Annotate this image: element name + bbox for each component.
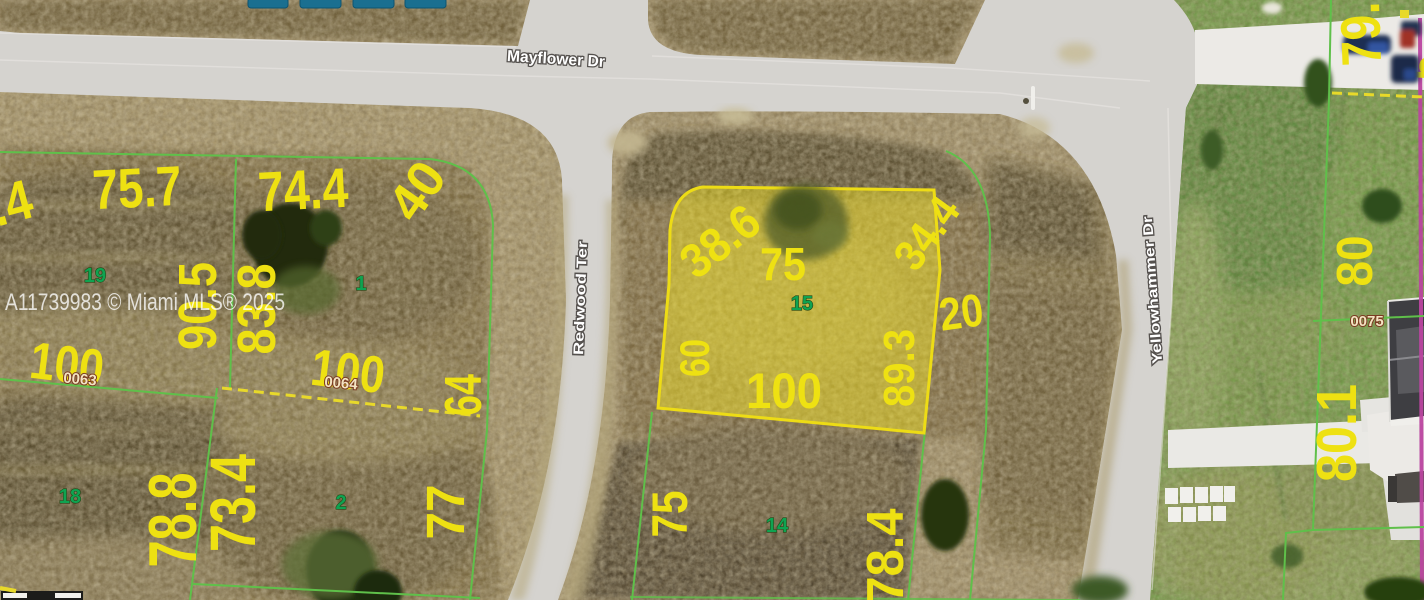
svg-text:75: 75 — [642, 491, 698, 538]
svg-text:80: 80 — [1326, 236, 1383, 287]
svg-text:64: 64 — [435, 374, 493, 416]
svg-text:89.3: 89.3 — [875, 329, 924, 407]
svg-text:15: 15 — [791, 293, 813, 315]
svg-text:20: 20 — [936, 283, 987, 341]
svg-text:0063: 0063 — [63, 370, 98, 390]
svg-text:60: 60 — [671, 339, 718, 377]
svg-text:14: 14 — [766, 515, 789, 537]
svg-text:77: 77 — [416, 485, 476, 540]
svg-text:78.4: 78.4 — [857, 508, 915, 600]
svg-text:75: 75 — [760, 238, 806, 290]
svg-text:0075: 0075 — [1350, 313, 1383, 330]
svg-text:A11739983 © Miami MLS® 2025: A11739983 © Miami MLS® 2025 — [5, 289, 285, 316]
svg-text:79.: 79. — [1328, 1, 1393, 67]
svg-text:74.4: 74.4 — [256, 156, 349, 224]
svg-text:1: 1 — [355, 273, 366, 295]
svg-text:73.4: 73.4 — [197, 454, 269, 552]
svg-text:75.7: 75.7 — [91, 154, 183, 222]
svg-text:0064: 0064 — [324, 374, 359, 394]
svg-text:19: 19 — [84, 265, 106, 287]
svg-text:18: 18 — [59, 486, 81, 508]
svg-text:100: 100 — [308, 339, 389, 406]
svg-text:100: 100 — [746, 363, 822, 419]
svg-text:2: 2 — [335, 492, 346, 514]
svg-text:80.1: 80.1 — [1305, 384, 1369, 482]
